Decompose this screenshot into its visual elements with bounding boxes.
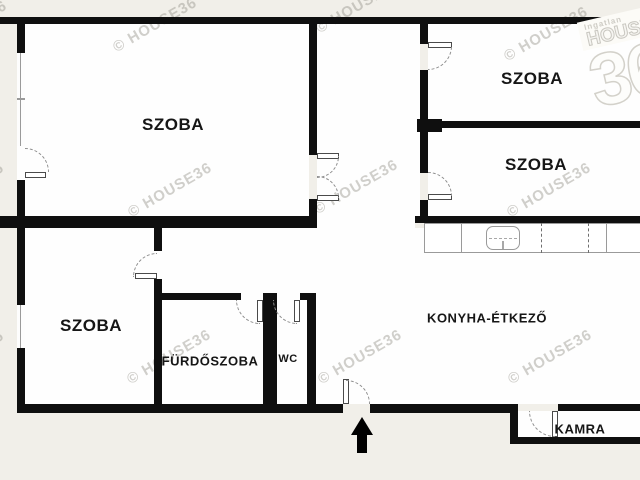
entrance-arrow-icon bbox=[351, 417, 373, 435]
wall bbox=[510, 437, 640, 444]
wall bbox=[17, 17, 25, 53]
faucet-line bbox=[489, 238, 517, 239]
wall bbox=[309, 199, 317, 228]
wall bbox=[307, 293, 316, 404]
wall bbox=[415, 216, 640, 223]
watermark-text: © HOUSE36 bbox=[0, 327, 7, 389]
stove-icon bbox=[541, 223, 589, 253]
sink-icon bbox=[486, 226, 520, 250]
window bbox=[17, 305, 25, 348]
watermark-text: © HOUSE36 bbox=[0, 0, 10, 59]
hallway-opening bbox=[317, 216, 415, 228]
counter-divider bbox=[461, 224, 462, 252]
room-label-wc: WC bbox=[278, 353, 297, 365]
wall bbox=[0, 216, 317, 228]
counter-divider bbox=[606, 224, 607, 252]
wall bbox=[370, 404, 510, 413]
room-label-konyha-etkezo: KONYHA-ÉTKEZŐ bbox=[427, 311, 547, 326]
wall bbox=[154, 228, 162, 251]
floor-plan: © HOUSE36 © HOUSE36 © HOUSE36 © HOUSE36 … bbox=[0, 0, 640, 480]
watermark-text: © HOUSE36 bbox=[0, 159, 7, 221]
room-label-szoba-mid-right: SZOBA bbox=[505, 155, 567, 175]
wall bbox=[0, 17, 640, 24]
window-sash-tick bbox=[17, 98, 25, 100]
wall bbox=[154, 293, 241, 300]
wall bbox=[428, 121, 640, 128]
wall bbox=[558, 404, 640, 411]
door-opening bbox=[17, 146, 25, 180]
room-label-kamra: KAMRA bbox=[555, 422, 606, 437]
wall bbox=[17, 404, 343, 413]
room-label-furdoszoba: FÜRDŐSZOBA bbox=[162, 354, 259, 369]
wall bbox=[420, 17, 428, 44]
wall bbox=[309, 17, 317, 155]
wall bbox=[17, 180, 25, 305]
kitchen-counter bbox=[424, 223, 640, 253]
door-leaf bbox=[25, 172, 46, 178]
faucet-stem bbox=[502, 241, 504, 249]
window-pane-line bbox=[20, 305, 21, 348]
room-label-szoba-main: SZOBA bbox=[142, 115, 204, 135]
room-label-szoba-bottom-left: SZOBA bbox=[60, 316, 122, 336]
room-label-szoba-top-right: SZOBA bbox=[501, 69, 563, 89]
entrance-arrow-stem bbox=[357, 434, 367, 453]
